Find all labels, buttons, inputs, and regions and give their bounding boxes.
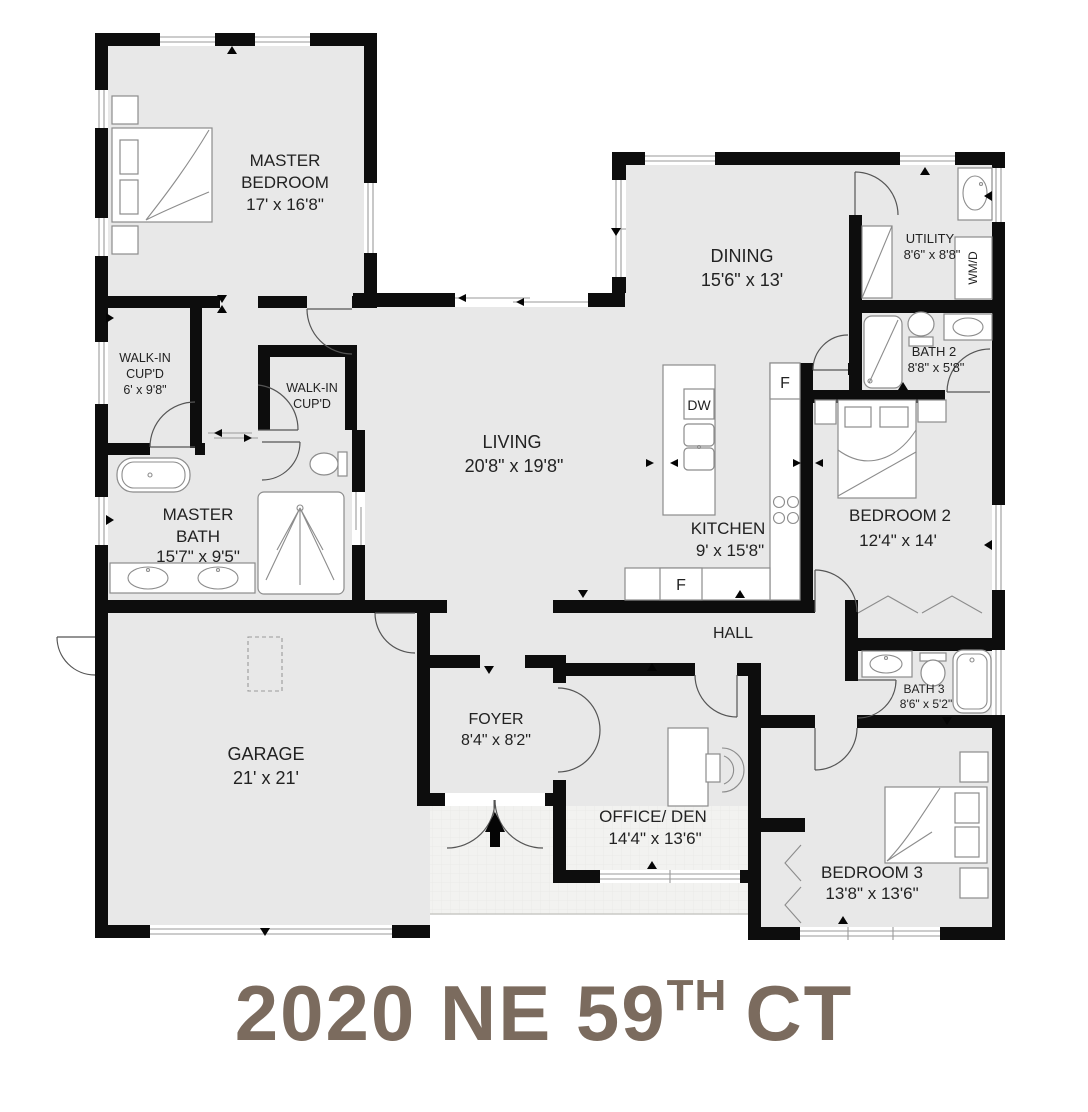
- master-toilet: [310, 452, 347, 476]
- label-utility-dims: 8'6" x 8'8": [904, 247, 961, 262]
- office-desk: [668, 728, 708, 806]
- label-walkin1-2: CUP'D: [126, 367, 164, 381]
- fridge-label-bottom: F: [676, 577, 686, 594]
- address-suffix: CT: [745, 969, 853, 1057]
- label-bedroom3: BEDROOM 3: [821, 863, 923, 882]
- dishwasher-label: DW: [687, 397, 711, 413]
- label-master-bath-1: MASTER: [163, 505, 234, 524]
- washer-dryer-label: WM/D: [966, 251, 980, 285]
- label-bath3: BATH 3: [903, 682, 944, 696]
- label-bath2: BATH 2: [912, 344, 957, 359]
- bath3-tub: [953, 650, 991, 713]
- master-shower: [258, 492, 344, 594]
- label-bath3-dims: 8'6" x 5'2": [900, 697, 952, 711]
- garage-door: [150, 925, 392, 938]
- label-bedroom2-dims: 12'4" x 14': [859, 531, 937, 550]
- bath2-shower: [864, 316, 902, 388]
- label-master-bedroom-2: BEDROOM: [241, 173, 329, 192]
- bathtub: [117, 458, 190, 492]
- utility-sink: [958, 168, 992, 220]
- label-walkin1-1: WALK-IN: [119, 351, 171, 365]
- label-hall: HALL: [713, 625, 753, 642]
- label-living: LIVING: [482, 432, 541, 452]
- bath3-vanity: [862, 651, 912, 677]
- label-dining: DINING: [711, 246, 774, 266]
- label-walkin2-2: CUP'D: [293, 397, 331, 411]
- label-master-bath-dims: 15'7" x 9'5": [156, 547, 240, 566]
- label-garage: GARAGE: [227, 744, 304, 764]
- address-main: 2020 NE 59: [235, 969, 667, 1057]
- label-walkin1-dims: 6' x 9'8": [123, 383, 166, 397]
- label-foyer: FOYER: [468, 711, 523, 728]
- label-dining-dims: 15'6" x 13': [701, 270, 783, 290]
- fridge-label-top: F: [780, 375, 790, 392]
- label-office: OFFICE/ DEN: [599, 807, 707, 826]
- label-bedroom2: BEDROOM 2: [849, 506, 951, 525]
- master-vanity-double-sink: [110, 563, 255, 593]
- utility-counter: [862, 226, 892, 298]
- address-ordinal: TH: [667, 971, 728, 1020]
- room-label-master-bedroom: MASTER BEDROOM 17' x 16'8": [241, 151, 329, 214]
- room-label-hall: HALL: [713, 625, 753, 642]
- room-label-utility: UTILITY 8'6" x 8'8": [904, 231, 961, 262]
- bath-pocket-slider: [352, 492, 365, 545]
- label-foyer-dims: 8'4" x 8'2": [461, 732, 531, 749]
- garage-side-door: [57, 637, 95, 675]
- label-kitchen: KITCHEN: [691, 519, 766, 538]
- bath2-sink: [944, 314, 992, 340]
- sliding-patio-door: [455, 293, 588, 307]
- address-title: 2020 NE 59THCT: [0, 968, 1088, 1059]
- floor-plan: MASTER BEDROOM 17' x 16'8" WALK-IN CUP'D…: [0, 0, 1088, 962]
- room-label-bath3: BATH 3 8'6" x 5'2": [900, 682, 952, 711]
- label-master-bedroom-dims: 17' x 16'8": [246, 195, 324, 214]
- label-bath2-dims: 8'8" x 5'8": [908, 360, 965, 375]
- label-master-bath-2: BATH: [176, 527, 220, 546]
- label-kitchen-dims: 9' x 15'8": [696, 541, 764, 560]
- room-label-walk-in-1: WALK-IN CUP'D 6' x 9'8": [119, 351, 171, 397]
- label-utility: UTILITY: [906, 231, 955, 246]
- label-master-bedroom-1: MASTER: [250, 151, 321, 170]
- label-walkin2-1: WALK-IN: [286, 381, 338, 395]
- label-living-dims: 20'8" x 19'8": [465, 456, 564, 476]
- room-label-bath2: BATH 2 8'8" x 5'8": [908, 344, 965, 375]
- label-office-dims: 14'4" x 13'6": [608, 829, 701, 848]
- label-bedroom3-dims: 13'8" x 13'6": [825, 884, 918, 903]
- label-garage-dims: 21' x 21': [233, 768, 299, 788]
- bath2-toilet: [908, 312, 934, 346]
